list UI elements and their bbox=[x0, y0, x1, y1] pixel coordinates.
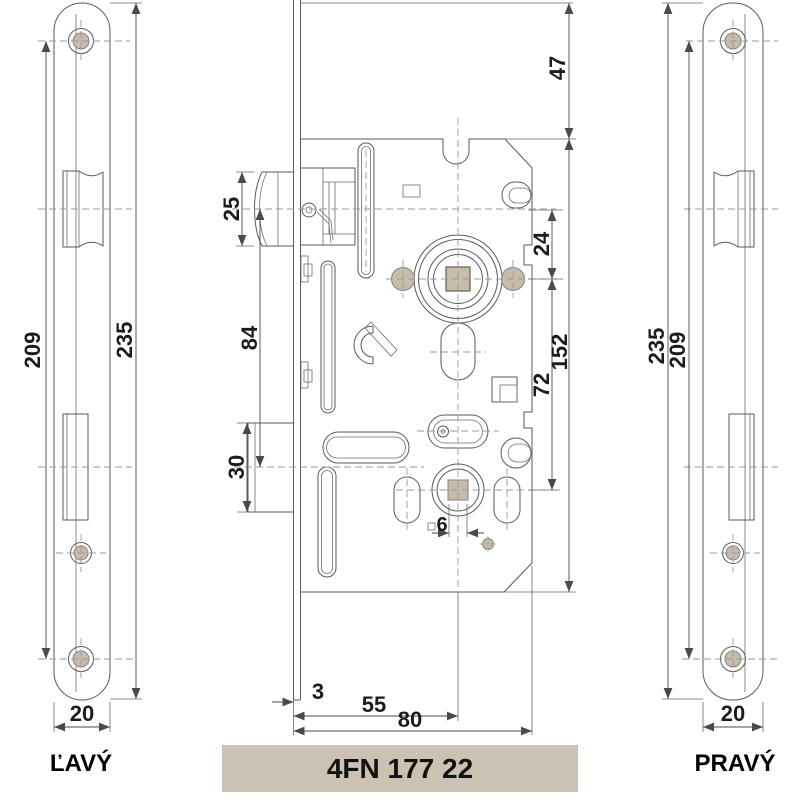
latch-spring-clip bbox=[354, 322, 397, 364]
product-code-plate: 4FN 177 22 bbox=[222, 745, 578, 792]
dim-left-plate-width: 20 bbox=[70, 701, 94, 726]
left-faceplate-view bbox=[54, 3, 110, 700]
dim-right-plate-width: 20 bbox=[721, 701, 745, 726]
dim-body-depth: 80 bbox=[398, 707, 422, 732]
right-faceplate-view bbox=[703, 3, 763, 700]
stop-bracket bbox=[492, 377, 517, 402]
dim-body-height: 152 bbox=[547, 334, 572, 371]
small-window bbox=[403, 185, 420, 197]
dim-left-plate-length: 235 bbox=[112, 322, 137, 359]
center-faceplate bbox=[294, 0, 301, 700]
extension-lines bbox=[54, 3, 763, 735]
mount-slot-bottom-right bbox=[501, 438, 531, 468]
technical-drawing-svg: 209 235 20 235 209 20 47 24 72 152 25 84… bbox=[0, 0, 800, 800]
left-plate-outline bbox=[54, 3, 110, 700]
right-variant-label: PRAVÝ bbox=[695, 749, 776, 777]
dimension-texts: 209 235 20 235 209 20 47 24 72 152 25 84… bbox=[20, 56, 745, 732]
left-variant-label: ĽAVÝ bbox=[50, 749, 112, 777]
deadbolt bbox=[248, 423, 294, 512]
dim-latch-to-hub: 24 bbox=[529, 231, 554, 256]
mount-slot-top-right bbox=[502, 182, 531, 208]
dim-lower-square: 6 bbox=[436, 514, 447, 536]
lock-body-view bbox=[248, 0, 532, 700]
lock-technical-drawing: 209 235 20 235 209 20 47 24 72 152 25 84… bbox=[0, 0, 800, 800]
dim-top-to-body: 47 bbox=[545, 56, 570, 80]
dim-latch-to-bolt: 84 bbox=[237, 325, 262, 350]
dim-bolt-height: 30 bbox=[224, 455, 249, 479]
dim-latch-height: 25 bbox=[219, 197, 244, 221]
deadbolt-tail-slot bbox=[323, 432, 409, 463]
right-plate-outline bbox=[703, 3, 763, 700]
spring-slot-middle bbox=[321, 261, 335, 413]
dimension-lines bbox=[46, 3, 763, 731]
product-code: 4FN 177 22 bbox=[327, 753, 473, 784]
latch-pivot bbox=[302, 203, 316, 217]
dim-backset: 55 bbox=[362, 692, 386, 717]
dim-left-screw-spacing: 209 bbox=[20, 332, 45, 369]
spring-slot-lower bbox=[318, 467, 336, 577]
latch-housing bbox=[301, 168, 356, 245]
dim-hub-to-lower-hub: 72 bbox=[529, 373, 554, 397]
dim-right-screw-spacing: 209 bbox=[665, 332, 690, 369]
square-symbol bbox=[428, 523, 435, 530]
faceplate-fixing-tabs bbox=[301, 256, 312, 388]
dim-plate-thickness: 3 bbox=[312, 679, 324, 704]
